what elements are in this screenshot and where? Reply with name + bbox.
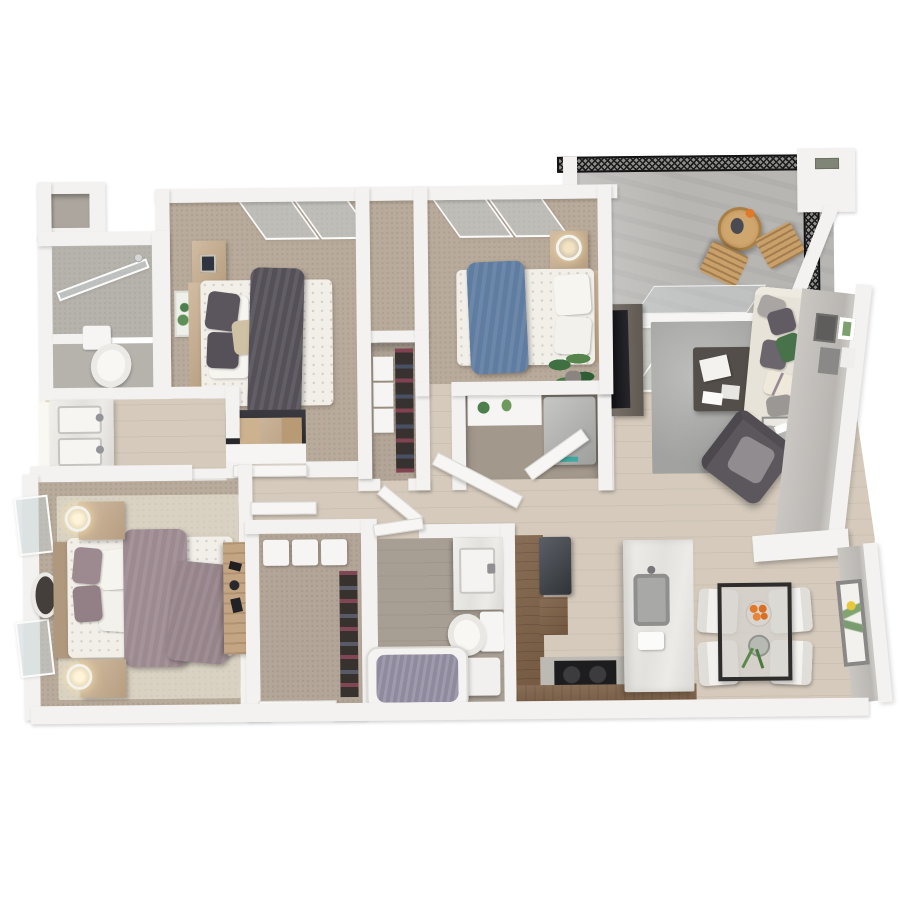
shower-head-icon [134,253,143,262]
master-top-wall [30,465,192,483]
kitchen-cabinet-mid [540,597,568,635]
balcony-table-orange [745,209,754,218]
refrigerator [539,537,572,595]
vanity-faucet-1 [96,414,104,422]
master-window-1 [14,495,54,557]
sliding-glass-door-upper [635,285,766,314]
column-vent-icon [815,158,839,169]
wall-frame-gray [818,347,841,375]
vanity-faucet-2 [96,446,104,454]
laundry-shelf-plant-2 [501,399,511,411]
coffee-table-book-2 [702,391,723,405]
bathtub-mat-purple [376,654,458,703]
bedroom1-clock [200,254,216,272]
entry-closet-top-wall [245,519,365,534]
bedroom1-throw-charcoal [247,267,305,418]
closet-mid-box-1 [373,357,393,381]
closet-mid-hanging-clothes [395,348,414,472]
bedroom2-bottom-wall-l [415,382,429,396]
bedroom2-throw-blue [466,260,529,375]
orange-1 [750,605,758,613]
laundry-right-wall [597,380,612,490]
bedroom2-lamp [556,235,582,261]
island-sink [633,574,670,626]
island-tray [638,632,664,650]
island-faucet [647,566,655,574]
wall-frame-dark [813,313,838,343]
laundry-shelf-plant-1 [477,402,489,414]
closet-mid-box-2 [373,383,393,407]
entry-closet-box-1 [263,540,289,566]
balcony-railing-top [557,154,811,173]
bedroom2-pillow-1 [553,273,592,316]
bath2-faucet [487,564,495,574]
balcony-table-vase [731,218,744,234]
bedroom2-right-wall [597,184,613,394]
niche-interior [49,194,89,228]
closet-mid-right-wall [415,330,431,490]
apartment-unit [0,0,900,900]
vanity-sink-1 [58,406,102,434]
master-pillow-mauve-2 [72,585,103,623]
vanity-sink-2 [58,438,102,466]
master-window-2 [15,619,55,679]
wall-frame-white [838,317,856,341]
entry-closet-hanging-clothes [339,571,358,697]
master-open-door [251,501,317,515]
bedroom2-left-wall [413,186,429,334]
closet-mid-box-3 [374,409,394,433]
master-lamp-1 [65,506,91,532]
master-desk-item-2 [229,580,239,590]
entry-closet-box-2 [292,539,318,565]
coffee-table-book-1 [721,384,740,400]
orange-3 [753,613,761,621]
shower-top-wall [38,231,166,246]
vanity-mirror-glow [39,402,50,468]
master-lamp-2 [66,664,92,690]
vanity-room-right-wall [225,386,240,438]
orange-2 [759,605,767,613]
entry-closet-box-3 [321,539,347,565]
floorplan-scene [0,0,900,900]
dining-table [717,582,792,681]
master-pillow-mauve-1 [72,547,103,585]
closet-mid-bottom-wall-l [358,479,380,491]
bedroom2-bottom-wall-r [451,380,611,396]
wall-frame-small [840,347,856,368]
orange-4 [761,613,768,620]
